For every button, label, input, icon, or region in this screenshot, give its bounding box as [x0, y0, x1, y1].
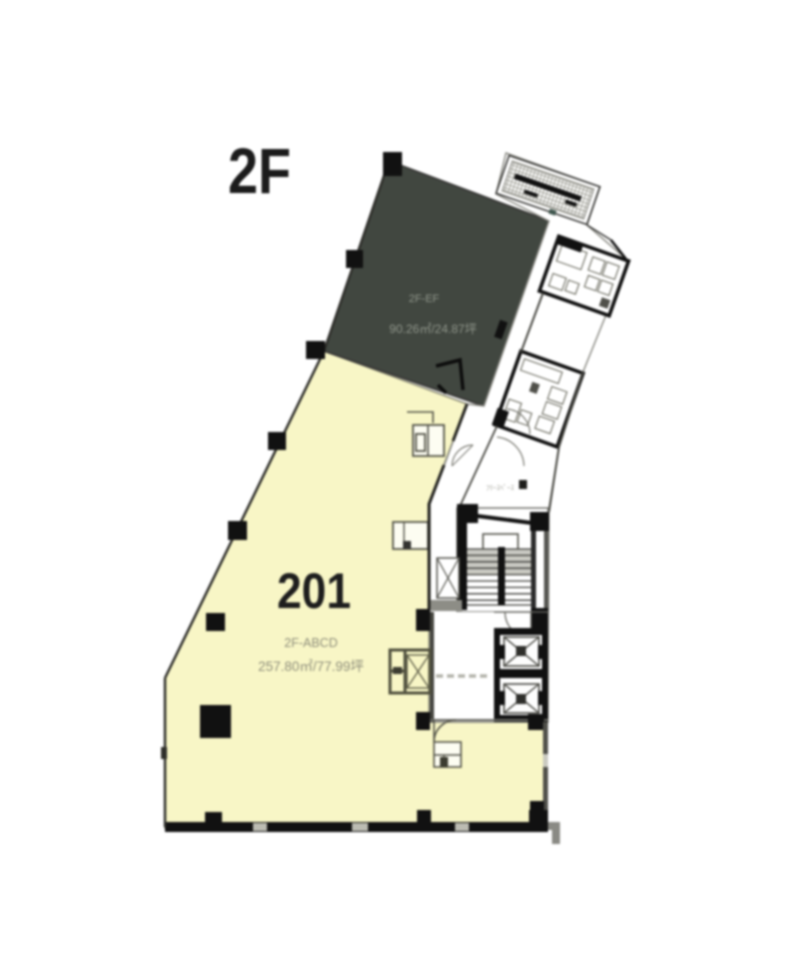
svg-text:201: 201 [277, 563, 351, 619]
svg-text:257.80㎡/77.99坪: 257.80㎡/77.99坪 [258, 659, 364, 674]
svg-text:90.26㎡/24.87坪: 90.26㎡/24.87坪 [389, 322, 476, 336]
svg-text:2F: 2F [228, 135, 291, 207]
svg-text:2F-EF: 2F-EF [409, 293, 440, 305]
svg-text:2F-ABCD: 2F-ABCD [284, 636, 337, 650]
svg-text:ﾌﾘｰｽﾍﾟｰｽ: ﾌﾘｰｽﾍﾟｰｽ [486, 484, 514, 492]
